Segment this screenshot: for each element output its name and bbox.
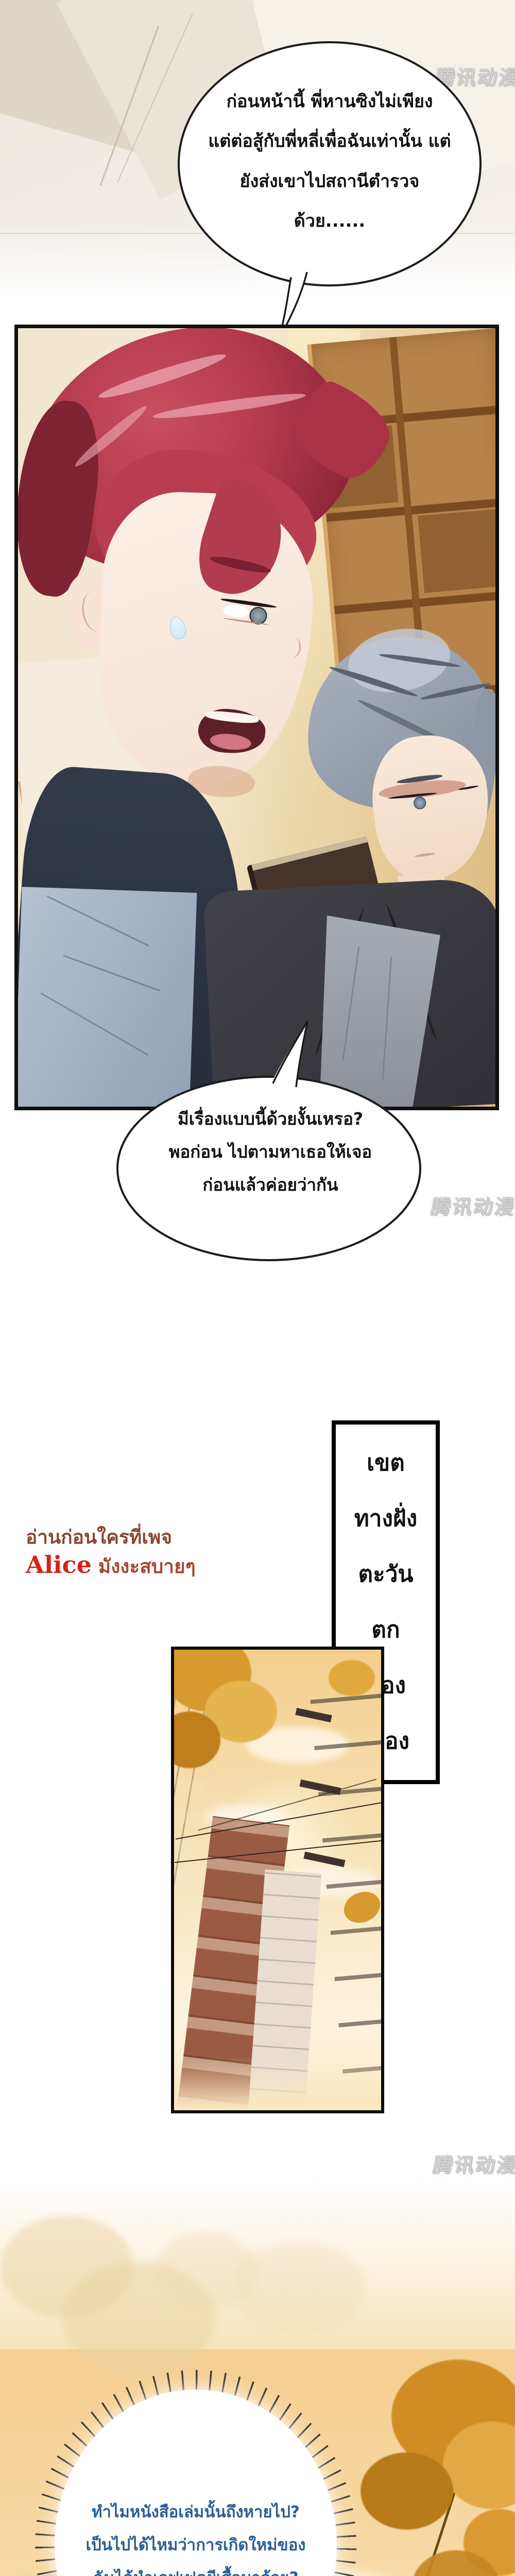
thought-burst-core: ทำไมหนังสือเล่มนั้นถึงหายไป? เป็นไปได้ไห… — [55, 2389, 337, 2576]
thought-line: ทำไมหนังสือเล่มนั้นถึงหายไป? — [75, 2500, 317, 2524]
bubble2-line: มีเรื่องแบบนี้ด้วยงั้นเหรอ? — [136, 1107, 404, 1131]
speech-bubble-2-text: มีเรื่องแบบนี้ด้วยงั้นเหรอ? พอก่อน ไปตาม… — [136, 1107, 404, 1206]
platform-watermark: 腾讯动漫 — [430, 1191, 515, 1219]
bubble1-line: แต่ต่อสู้กับพี่หลี่เพื่อฉันเท่านั้น แต่ — [193, 129, 466, 154]
page-watermark-top: อ่านก่อนใครที่เพจ Alice มังงะสบายๆ — [26, 1525, 196, 1581]
eye-white — [222, 604, 249, 618]
bottom-haze — [174, 2057, 381, 2110]
caption-word: ทางฝั่ง — [354, 1502, 417, 1536]
fabric-fold — [63, 955, 160, 991]
bubble2-line: พอก่อน ไปตามหาเธอให้เจอ — [136, 1140, 404, 1164]
bubble1-line: ด้วย...... — [193, 209, 466, 234]
speech-bubble-1-text: ก่อนหน้านี้ พี่หานซิงไม่เพียง แต่ต่อสู้ก… — [193, 89, 466, 248]
panel-city-scene — [171, 1647, 384, 2113]
panel-office-scene — [14, 325, 499, 1110]
bubble1-line: ก่อนหน้านี้ พี่หานซิงไม่เพียง — [193, 89, 466, 114]
fabric-fold — [47, 895, 149, 946]
comic-page: 腾讯动漫 ก่อนหน้านี้ พี่หานซิงไม่เพียง แต่ต่… — [0, 0, 515, 2576]
bubble1-line: ยังส่งเขาไปสถานีตำรวจ — [193, 169, 466, 194]
tree-foliage — [360, 2452, 453, 2530]
tongue — [210, 732, 252, 752]
pale-foliage — [232, 2241, 366, 2334]
thought-line: ฉันได้นำเอฟเฟคผีเสื้อมาด้วย? — [75, 2566, 317, 2576]
caption-word: ตะวัน — [358, 1557, 414, 1591]
page-watermark-rest: มังงะสบายๆ — [92, 1555, 196, 1578]
shelf-shadow-cell — [418, 509, 499, 593]
thought-line: เป็นไปได้ไหมว่าการเกิดใหม่ของ — [75, 2533, 317, 2557]
speech-bubble-1: ก่อนหน้านี้ พี่หานซิงไม่เพียง แต่ต่อสู้ก… — [175, 40, 484, 349]
page-watermark-line1: อ่านก่อนใครที่เพจ — [26, 1525, 196, 1550]
leaves-right — [329, 1660, 375, 1696]
eye-iris — [413, 796, 426, 809]
page-watermark-line2: Alice มังงะสบายๆ — [26, 1550, 196, 1581]
caption-word: ตก — [371, 1613, 400, 1647]
platform-watermark: 腾讯动漫 — [432, 2149, 515, 2178]
page-watermark-brand: Alice — [26, 1551, 92, 1579]
speech-bubble-2: มีเรื่องแบบนี้ด้วยงั้นเหรอ? พอก่อน ไปตาม… — [116, 1014, 425, 1267]
bubble2-line: ก่อนแล้วค่อยว่ากัน — [136, 1173, 404, 1197]
caption-word: เขต — [367, 1446, 405, 1480]
